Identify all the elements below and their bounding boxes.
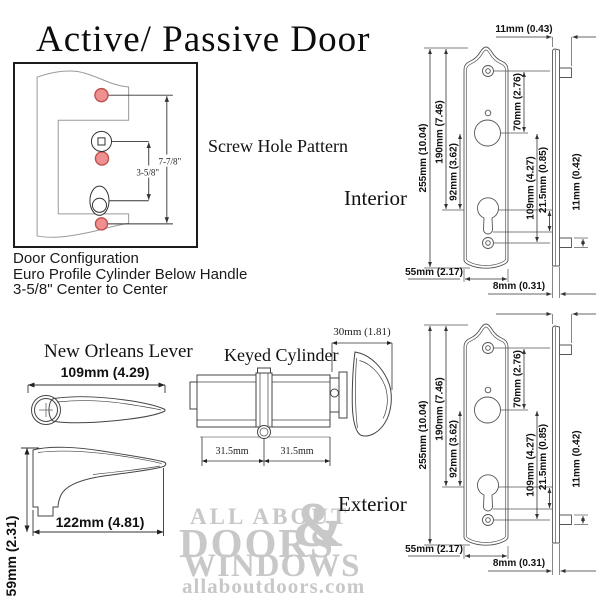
cylinder-dim-right-half: 31.5mm bbox=[280, 446, 313, 457]
door-configuration-text: Door Configuration Euro Profile Cylinder… bbox=[13, 251, 247, 298]
interior-dim-plate-width: 55mm (2.17) bbox=[405, 267, 463, 278]
exterior-dim-plate-thickness: 8mm (0.31) bbox=[493, 558, 545, 569]
interior-label: Interior bbox=[344, 186, 407, 211]
interior-dim-cylinder-offset: 21.5mm (0.85) bbox=[538, 147, 549, 213]
keyed-cylinder-diagram: 30mm (1.81) bbox=[185, 320, 400, 470]
exterior-diagram: 255mm (10.04) 190mm (7.46) 92mm (3.62) 7… bbox=[400, 287, 600, 600]
exterior-plate-side-view bbox=[553, 326, 572, 543]
thumbturn bbox=[330, 352, 391, 436]
page-title: Active/ Passive Door bbox=[36, 18, 370, 61]
watermark-url: allaboutdoors.com bbox=[182, 574, 365, 599]
exterior-dim-cylinder-offset: 21.5mm (0.85) bbox=[538, 424, 549, 490]
lever-top-dimension bbox=[28, 385, 165, 393]
spec-sheet: ALL ABOUT & DOORS WINDOWS allaboutdoors.… bbox=[0, 0, 600, 600]
exterior-plate-front-view bbox=[464, 324, 508, 545]
interior-plate-side-view bbox=[553, 49, 572, 266]
dim-7-7-8: 7-7/8" bbox=[158, 157, 181, 167]
interior-dim-height: 255mm (10.04) bbox=[418, 124, 429, 193]
interior-dim-profile-width: 11mm (0.43) bbox=[495, 24, 552, 35]
backplate-outline bbox=[37, 71, 129, 237]
lever-dim-top-length: 109mm (4.29) bbox=[61, 364, 150, 380]
interior-plate-front-view bbox=[464, 47, 508, 268]
interior-dim-screw-to-spindle: 70mm (2.76) bbox=[513, 73, 524, 131]
config-line2: Euro Profile Cylinder Below Handle bbox=[13, 267, 247, 283]
screw-hole-pattern-caption: Screw Hole Pattern bbox=[208, 136, 348, 157]
cylinder-dim-left-half: 31.5mm bbox=[215, 446, 248, 457]
fixing-screw bbox=[258, 426, 271, 439]
interior-dim-top-to-cylinder: 190mm (7.46) bbox=[435, 100, 446, 163]
screw-hole-pattern-diagram: 7-7/8" 3-5/8" bbox=[15, 64, 196, 246]
exterior-dim-plate-width: 55mm (2.17) bbox=[405, 544, 463, 555]
exterior-dim-spindle-to-cylinder: 92mm (3.62) bbox=[449, 420, 460, 478]
lever-top-view bbox=[32, 396, 166, 425]
euro-cylinder-hole bbox=[90, 186, 109, 215]
interior-dim-tab: 11mm (0.42) bbox=[572, 153, 583, 210]
exterior-dim-screw-to-spindle: 70mm (2.76) bbox=[513, 350, 524, 408]
exterior-dim-spindle-to-screw: 109mm (4.27) bbox=[526, 433, 537, 496]
exterior-dim-tab: 11mm (0.42) bbox=[572, 430, 583, 487]
lever-diagram: 109mm (4.29) bbox=[5, 360, 185, 598]
exterior-dim-top-to-cylinder: 190mm (7.46) bbox=[435, 377, 446, 440]
dim-3-5-8: 3-5/8" bbox=[136, 168, 159, 178]
exterior-dim-height: 255mm (10.04) bbox=[418, 401, 429, 470]
config-line3: 3-5/8" Center to Center bbox=[13, 282, 247, 298]
config-line1: Door Configuration bbox=[13, 251, 247, 267]
interior-dim-spindle-to-screw: 109mm (4.27) bbox=[526, 156, 537, 219]
cylinder-cam-channel bbox=[256, 368, 272, 427]
exterior-label: Exterior bbox=[338, 492, 407, 517]
screw-hole-pattern-box: 7-7/8" 3-5/8" bbox=[13, 62, 198, 248]
spindle-hole bbox=[91, 131, 111, 151]
lever-dim-height: 59mm (2.31) bbox=[5, 516, 19, 597]
lever-dim-side-length: 122mm (4.81) bbox=[56, 514, 145, 530]
cylinder-dim-thumbturn: 30mm (1.81) bbox=[333, 326, 391, 338]
interior-diagram: 11mm (0.43) 255mm (10.04) 190mm (7.46) 9… bbox=[400, 10, 600, 305]
interior-dim-spindle-to-cylinder: 92mm (3.62) bbox=[449, 143, 460, 201]
lever-side-view bbox=[33, 447, 166, 516]
